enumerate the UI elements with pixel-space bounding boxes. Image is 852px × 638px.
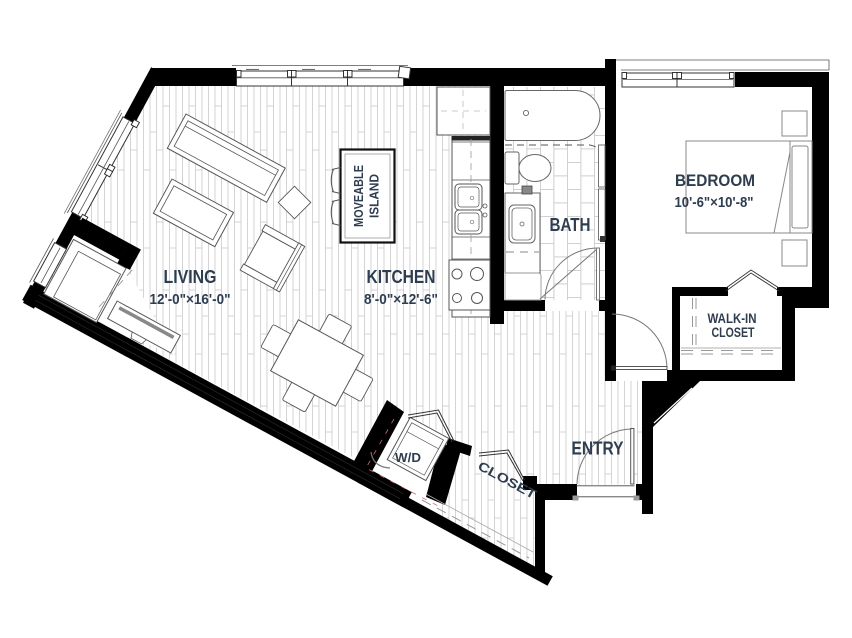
svg-text:BATH: BATH (550, 215, 591, 235)
svg-text:CLOSET: CLOSET (712, 325, 756, 340)
svg-text:KITCHEN: KITCHEN (367, 267, 436, 287)
svg-text:W/D: W/D (395, 450, 421, 465)
svg-text:BEDROOM: BEDROOM (675, 172, 755, 190)
svg-text:MOVEABLE: MOVEABLE (351, 165, 366, 227)
svg-text:10'-6"×10'-8": 10'-6"×10'-8" (675, 194, 754, 211)
svg-text:WALK-IN: WALK-IN (708, 311, 757, 326)
svg-text:ENTRY: ENTRY (572, 439, 624, 459)
svg-text:LIVING: LIVING (164, 267, 217, 287)
svg-text:8'-0"×12'-6": 8'-0"×12'-6" (364, 291, 438, 308)
svg-text:ISLAND: ISLAND (367, 174, 382, 218)
svg-text:12'-0"×16'-0": 12'-0"×16'-0" (150, 291, 231, 308)
